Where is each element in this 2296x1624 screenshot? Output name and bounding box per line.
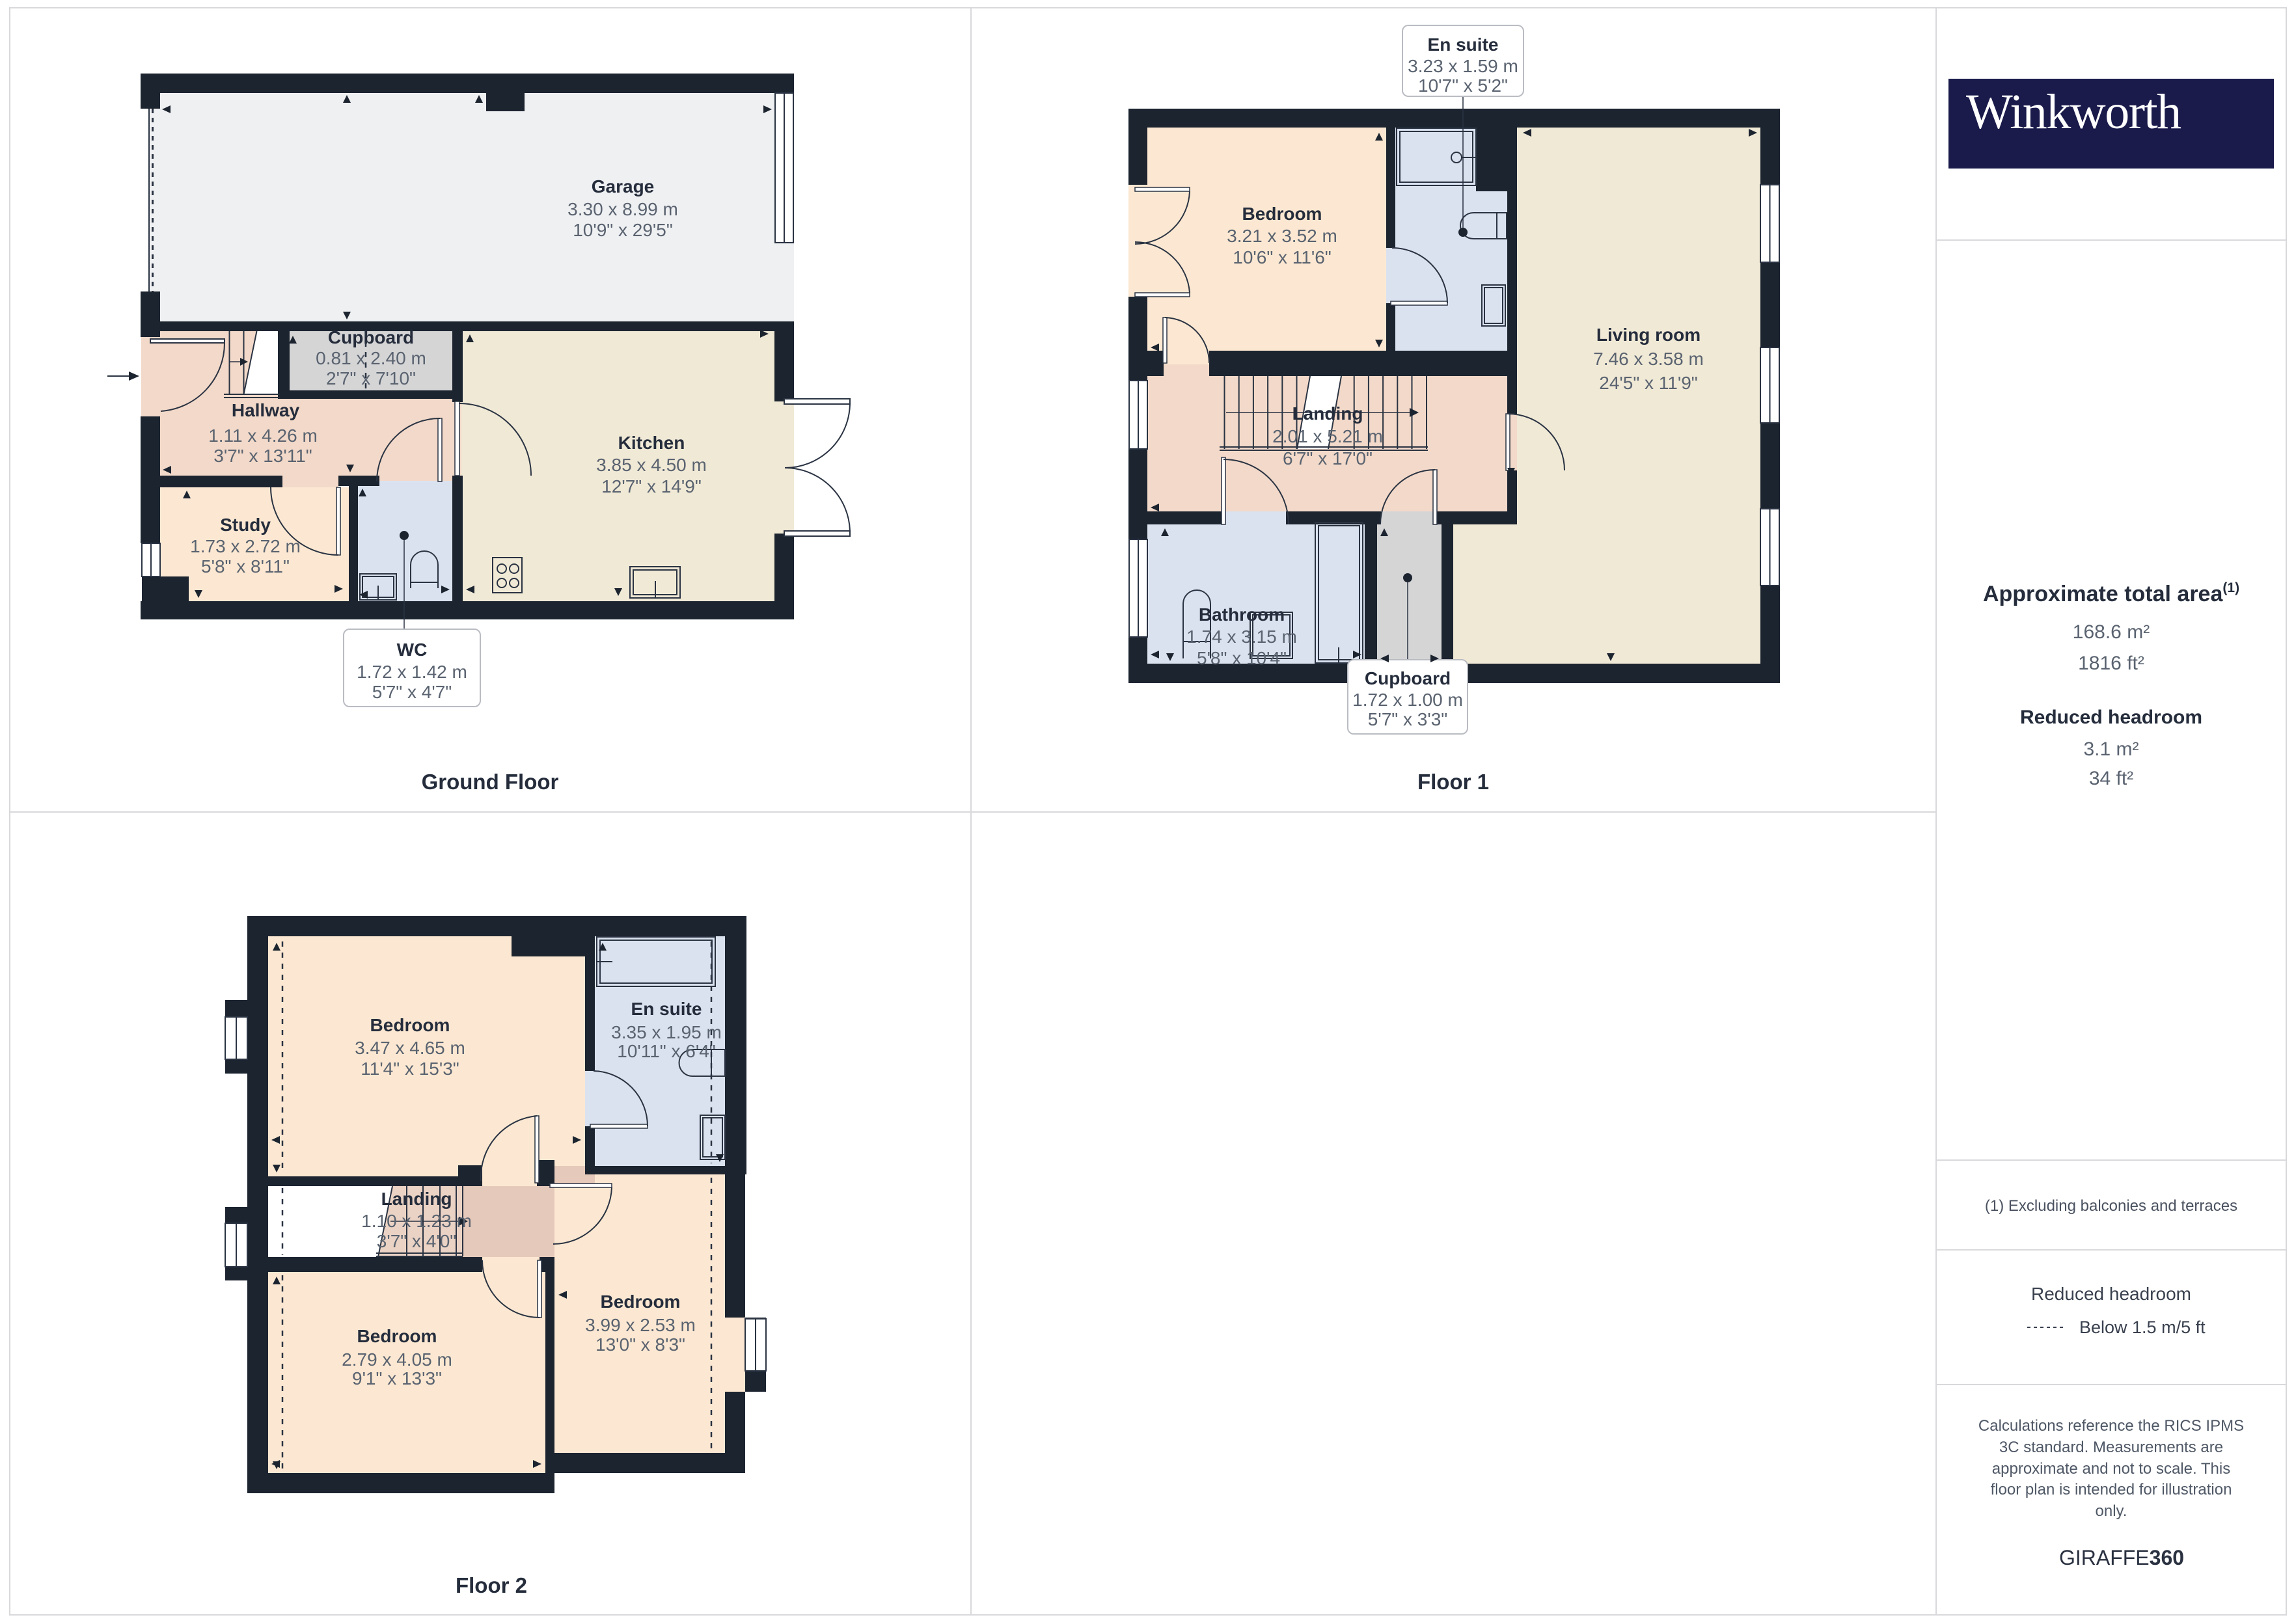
svg-text:5'8" x 8'11": 5'8" x 8'11" — [201, 556, 290, 576]
svg-text:3.1 m²: 3.1 m² — [2083, 738, 2139, 760]
svg-text:1.74 x 3.15 m: 1.74 x 3.15 m — [1186, 627, 1297, 647]
svg-text:13'0" x 8'3": 13'0" x 8'3" — [595, 1334, 685, 1355]
svg-text:Below 1.5 m/5 ft: Below 1.5 m/5 ft — [2079, 1318, 2206, 1337]
svg-text:Bathroom: Bathroom — [1199, 604, 1285, 625]
svg-text:1.10 x 1.23 m: 1.10 x 1.23 m — [361, 1211, 472, 1231]
svg-text:Floor 2: Floor 2 — [456, 1573, 527, 1597]
svg-text:Reduced headroom: Reduced headroom — [2031, 1284, 2191, 1304]
svg-text:3.35 x 1.95 m: 3.35 x 1.95 m — [611, 1022, 722, 1042]
svg-text:Approximate total area(1): Approximate total area(1) — [1983, 580, 2239, 606]
svg-text:3.21 x 3.52 m: 3.21 x 3.52 m — [1227, 226, 1337, 246]
svg-text:floor plan is intended for ill: floor plan is intended for illustration — [1991, 1481, 2232, 1498]
svg-text:GIRAFFE360: GIRAFFE360 — [2059, 1546, 2184, 1569]
svg-text:3'7" x 13'11": 3'7" x 13'11" — [213, 446, 312, 466]
svg-text:3C standard. Measurements are: 3C standard. Measurements are — [1999, 1439, 2223, 1456]
svg-text:168.6 m²: 168.6 m² — [2073, 621, 2150, 643]
svg-text:Hallway: Hallway — [232, 400, 300, 420]
svg-text:3'7" x 4'0": 3'7" x 4'0" — [377, 1231, 456, 1251]
svg-text:approximate and not to scale.: approximate and not to scale. This — [1992, 1460, 2230, 1478]
svg-text:Kitchen: Kitchen — [618, 433, 685, 453]
svg-text:Bedroom: Bedroom — [601, 1292, 681, 1312]
svg-text:2.79 x 4.05 m: 2.79 x 4.05 m — [342, 1349, 452, 1370]
svg-text:1.72 x 1.00 m: 1.72 x 1.00 m — [1352, 690, 1463, 710]
svg-text:Winkworth: Winkworth — [1966, 85, 2181, 139]
svg-text:3.99 x 2.53 m: 3.99 x 2.53 m — [585, 1315, 696, 1335]
svg-text:Garage: Garage — [592, 176, 655, 196]
svg-text:1.11 x 4.26 m: 1.11 x 4.26 m — [208, 426, 318, 446]
svg-text:5'7" x 3'3": 5'7" x 3'3" — [1368, 709, 1447, 729]
svg-text:12'7" x 14'9": 12'7" x 14'9" — [601, 476, 702, 496]
svg-text:Cupboard: Cupboard — [1365, 668, 1451, 688]
svg-text:6'7" x 17'0": 6'7" x 17'0" — [1283, 448, 1373, 468]
svg-text:7.46 x 3.58 m: 7.46 x 3.58 m — [1593, 349, 1704, 369]
svg-text:WC: WC — [397, 640, 428, 660]
svg-text:10'9" x 29'5": 10'9" x 29'5" — [573, 220, 673, 240]
svg-text:10'6" x 11'6": 10'6" x 11'6" — [1233, 247, 1331, 267]
svg-text:11'4" x 15'3": 11'4" x 15'3" — [361, 1059, 459, 1079]
svg-text:Landing: Landing — [1292, 403, 1363, 424]
svg-text:Study: Study — [220, 515, 271, 535]
svg-text:Calculations reference the RIC: Calculations reference the RICS IPMS — [1978, 1417, 2244, 1435]
svg-text:10'7" x 5'2": 10'7" x 5'2" — [1418, 75, 1508, 96]
svg-text:En suite: En suite — [631, 999, 702, 1019]
svg-text:34 ft²: 34 ft² — [2089, 768, 2133, 789]
svg-text:3.47 x 4.65 m: 3.47 x 4.65 m — [355, 1038, 465, 1058]
svg-text:Landing: Landing — [381, 1189, 452, 1209]
svg-text:Bedroom: Bedroom — [370, 1015, 450, 1035]
svg-text:(1) Excluding balconies and te: (1) Excluding balconies and terraces — [1985, 1197, 2237, 1215]
svg-text:3.23 x 1.59 m: 3.23 x 1.59 m — [1408, 56, 1518, 76]
svg-text:Bedroom: Bedroom — [357, 1326, 437, 1346]
svg-text:5'8" x 10'4": 5'8" x 10'4" — [1197, 648, 1287, 668]
svg-text:2'7" x 7'10": 2'7" x 7'10" — [326, 368, 416, 388]
svg-text:5'7" x 4'7": 5'7" x 4'7" — [372, 682, 452, 702]
svg-text:Reduced headroom: Reduced headroom — [2020, 707, 2202, 728]
svg-text:2.01 x 5.21 m: 2.01 x 5.21 m — [1272, 426, 1383, 446]
svg-text:Floor 1: Floor 1 — [1417, 770, 1489, 794]
svg-text:1.73 x 2.72 m: 1.73 x 2.72 m — [190, 536, 301, 556]
svg-text:10'11" x 6'4": 10'11" x 6'4" — [617, 1041, 715, 1061]
svg-text:9'1" x 13'3": 9'1" x 13'3" — [352, 1368, 442, 1388]
svg-text:Bedroom: Bedroom — [1242, 204, 1322, 224]
svg-text:En suite: En suite — [1428, 34, 1499, 55]
svg-text:Living room: Living room — [1596, 325, 1701, 345]
svg-text:3.30 x 8.99 m: 3.30 x 8.99 m — [567, 199, 678, 219]
svg-text:0.81 x 2.40 m: 0.81 x 2.40 m — [316, 348, 426, 368]
svg-text:only.: only. — [2096, 1502, 2127, 1520]
svg-text:1.72 x 1.42 m: 1.72 x 1.42 m — [357, 662, 467, 682]
svg-text:Cupboard: Cupboard — [328, 327, 414, 347]
svg-text:Ground Floor: Ground Floor — [422, 770, 559, 794]
svg-text:1816 ft²: 1816 ft² — [2078, 653, 2144, 674]
svg-text:3.85 x 4.50 m: 3.85 x 4.50 m — [596, 455, 707, 475]
svg-text:24'5" x 11'9": 24'5" x 11'9" — [1599, 373, 1697, 393]
